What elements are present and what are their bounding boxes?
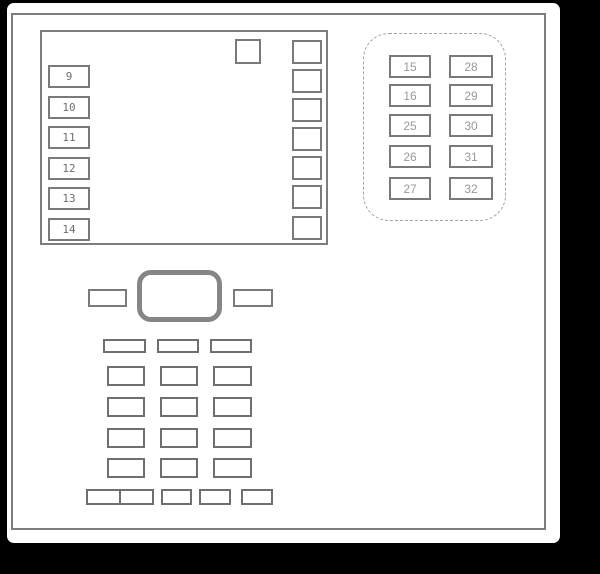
slot-r4c3 [213, 458, 252, 478]
fuse-26: 26 [389, 145, 431, 168]
slot-r4c1 [107, 458, 145, 478]
bottom-slot-1 [86, 489, 121, 505]
bottom-slot-3 [161, 489, 192, 505]
relay-slot-6 [292, 185, 322, 209]
connector-left [88, 289, 127, 307]
slot-flat-2 [157, 339, 199, 353]
slot-r2c2 [160, 397, 198, 417]
slot-r2c1 [107, 397, 145, 417]
bottom-slot-5 [241, 489, 273, 505]
relay-slot-3 [292, 98, 322, 122]
slot-r1c1 [107, 366, 145, 386]
slot-r1c2 [160, 366, 198, 386]
slot-r1c3 [213, 366, 252, 386]
fuse-group-dashed-panel: 15 16 25 26 27 28 29 30 31 32 [363, 33, 506, 221]
fuse-28: 28 [449, 55, 493, 78]
fuse-14: 14 [48, 218, 90, 241]
fuse-27: 27 [389, 177, 431, 200]
slot-r3c3 [213, 428, 252, 448]
fuse-25: 25 [389, 114, 431, 137]
fuse-11: 11 [48, 126, 90, 149]
fuse-12: 12 [48, 157, 90, 180]
slot-r4c2 [160, 458, 198, 478]
aux-slot [235, 39, 261, 64]
relay-slot-1 [292, 40, 322, 64]
relay-slot-5 [292, 156, 322, 180]
main-relay-block [137, 270, 222, 322]
relay-slot-7 [292, 216, 322, 240]
fuse-32: 32 [449, 177, 493, 200]
bottom-slot-4 [199, 489, 231, 505]
relay-slot-4 [292, 127, 322, 151]
fuse-31: 31 [449, 145, 493, 168]
bottom-slot-2 [119, 489, 154, 505]
fuse-10: 10 [48, 96, 90, 119]
fuse-30: 30 [449, 114, 493, 137]
fuse-29: 29 [449, 84, 493, 107]
slot-r3c2 [160, 428, 198, 448]
fuse-9: 9 [48, 65, 90, 88]
fuse-13: 13 [48, 187, 90, 210]
relay-fuse-panel: 9 10 11 12 13 14 [40, 30, 328, 245]
fuse-box-diagram: 9 10 11 12 13 14 15 16 25 26 27 28 29 30… [0, 0, 600, 574]
connector-right [233, 289, 273, 307]
fuse-16: 16 [389, 84, 431, 107]
slot-r2c3 [213, 397, 252, 417]
relay-slot-2 [292, 69, 322, 93]
fuse-15: 15 [389, 55, 431, 78]
slot-r3c1 [107, 428, 145, 448]
slot-flat-3 [210, 339, 252, 353]
slot-flat-1 [103, 339, 146, 353]
